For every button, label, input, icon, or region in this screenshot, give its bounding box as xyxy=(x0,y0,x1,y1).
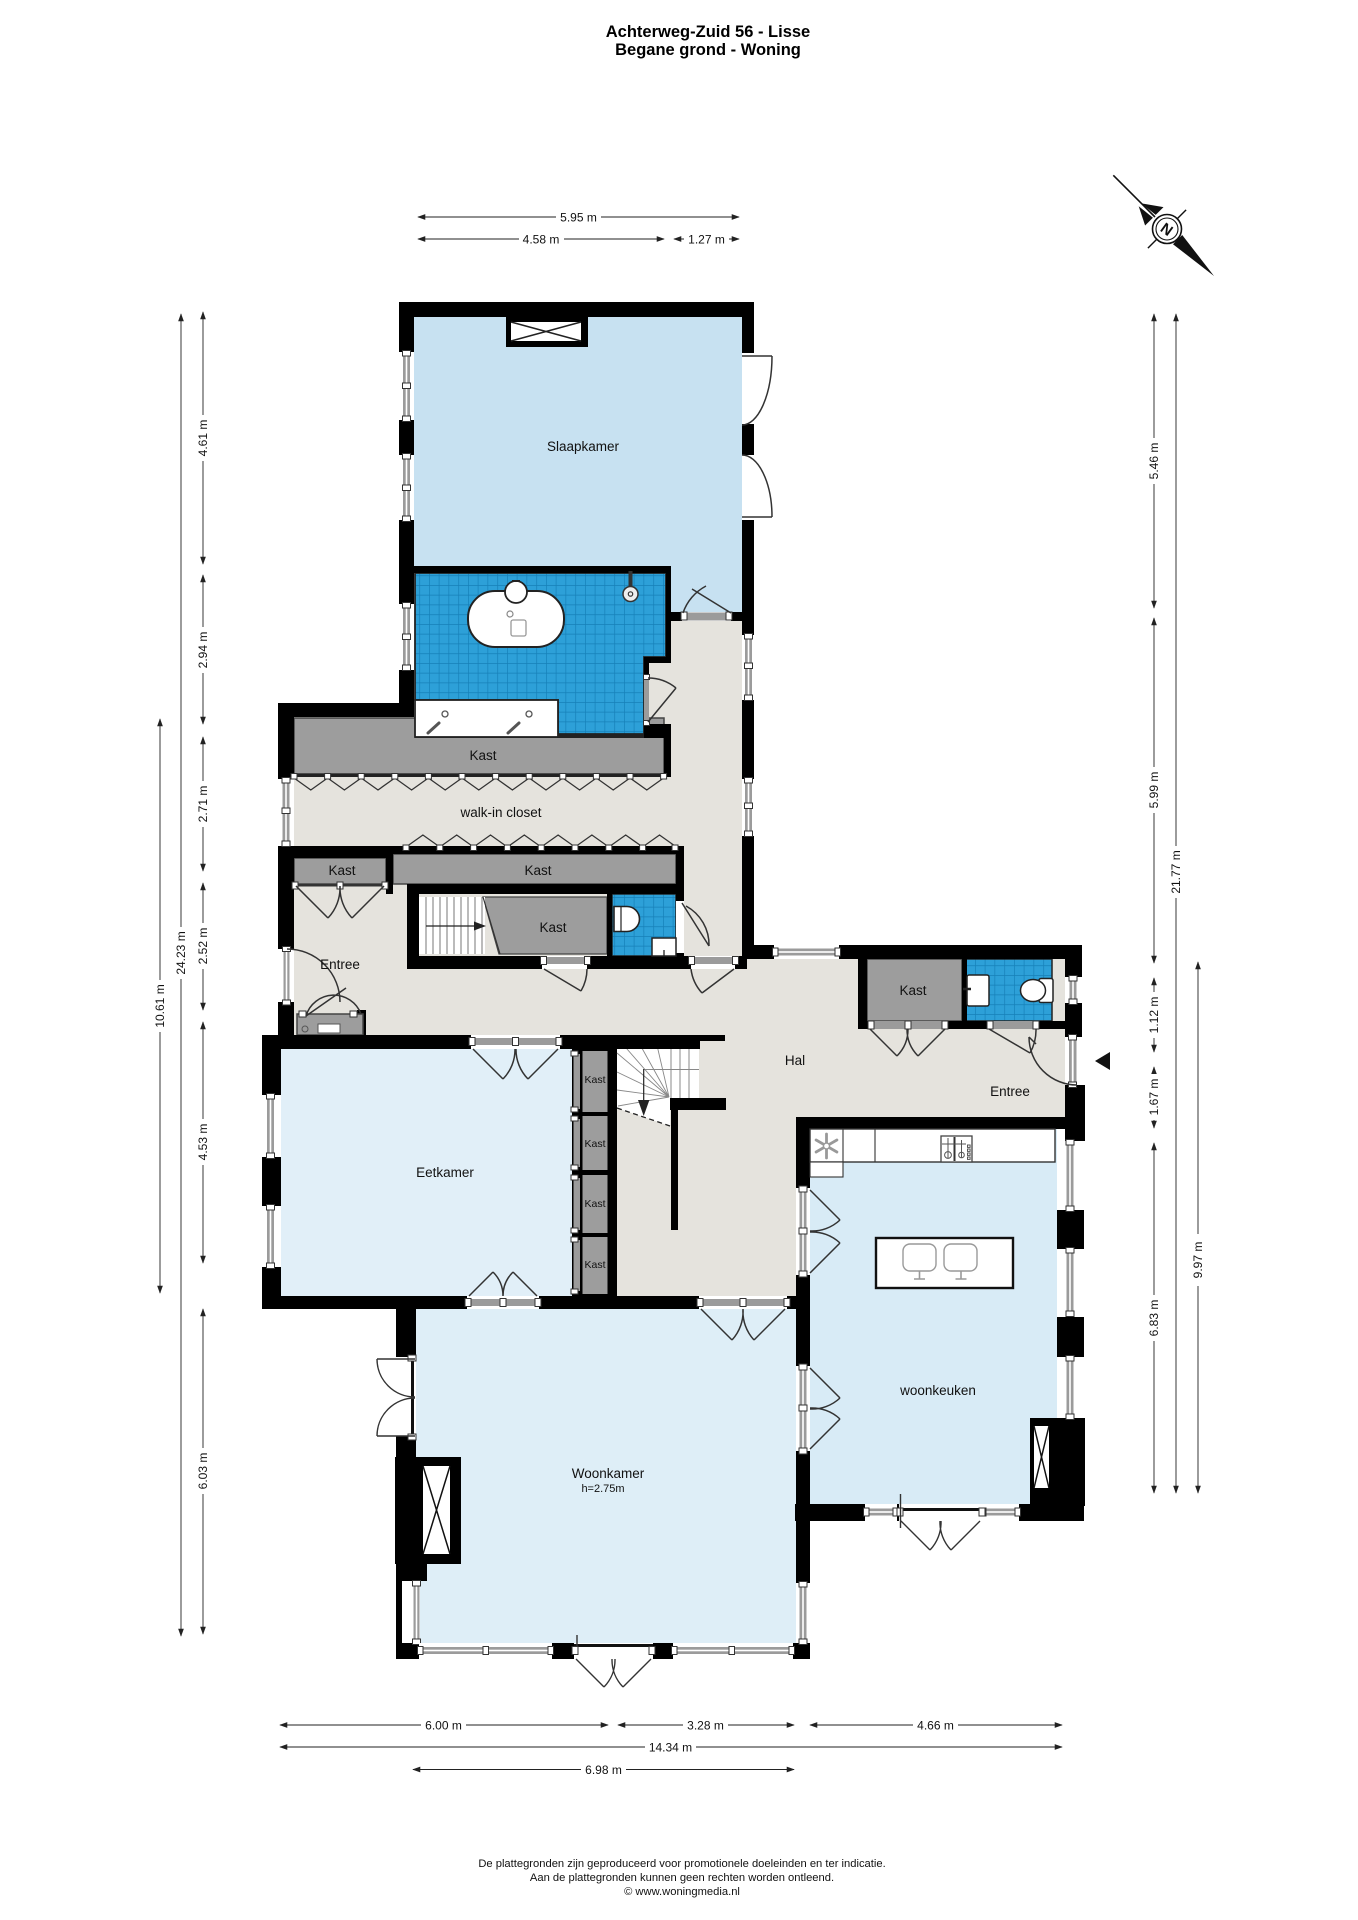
svg-text:Hal: Hal xyxy=(785,1053,805,1068)
svg-text:Entree: Entree xyxy=(320,957,360,972)
svg-text:© www.woningmedia.nl: © www.woningmedia.nl xyxy=(624,1886,740,1898)
svg-text:24.23 m: 24.23 m xyxy=(174,931,188,974)
svg-text:5.99 m: 5.99 m xyxy=(1147,772,1161,809)
svg-text:9.97 m: 9.97 m xyxy=(1191,1242,1205,1279)
svg-text:2.52 m: 2.52 m xyxy=(196,928,210,965)
svg-text:h=2.75m: h=2.75m xyxy=(581,1483,624,1495)
svg-text:De plattegronden zijn geproduc: De plattegronden zijn geproduceerd voor … xyxy=(478,1858,885,1870)
svg-text:Achterweg-Zuid 56 - Lisse: Achterweg-Zuid 56 - Lisse xyxy=(606,23,810,41)
svg-text:Kast: Kast xyxy=(584,1198,605,1210)
svg-text:2.94 m: 2.94 m xyxy=(196,632,210,669)
svg-text:5.46 m: 5.46 m xyxy=(1147,443,1161,480)
svg-text:4.61 m: 4.61 m xyxy=(196,420,210,457)
svg-text:Aan de plattegronden kunnen ge: Aan de plattegronden kunnen geen rechten… xyxy=(530,1872,834,1884)
svg-text:Kast: Kast xyxy=(328,863,355,878)
svg-text:Eetkamer: Eetkamer xyxy=(416,1165,474,1180)
svg-text:2.71 m: 2.71 m xyxy=(196,786,210,823)
svg-text:walk-in closet: walk-in closet xyxy=(459,805,541,820)
svg-text:Begane grond - Woning: Begane grond - Woning xyxy=(615,41,801,59)
svg-text:4.58 m: 4.58 m xyxy=(523,233,560,247)
svg-text:6.83 m: 6.83 m xyxy=(1147,1300,1161,1337)
svg-text:Kast: Kast xyxy=(584,1074,605,1086)
svg-text:21.77 m: 21.77 m xyxy=(1169,850,1183,893)
svg-text:6.03 m: 6.03 m xyxy=(196,1453,210,1490)
svg-text:woonkeuken: woonkeuken xyxy=(899,1383,976,1398)
svg-text:1.27 m: 1.27 m xyxy=(688,233,725,247)
svg-text:Woonkamer: Woonkamer xyxy=(572,1466,645,1481)
svg-text:Kast: Kast xyxy=(584,1138,605,1150)
svg-text:10.61 m: 10.61 m xyxy=(153,984,167,1027)
svg-text:5.95 m: 5.95 m xyxy=(560,211,597,225)
svg-text:14.34 m: 14.34 m xyxy=(649,1741,692,1755)
svg-text:6.98 m: 6.98 m xyxy=(585,1763,622,1777)
svg-text:Kast: Kast xyxy=(899,983,926,998)
svg-text:1.12 m: 1.12 m xyxy=(1147,997,1161,1034)
svg-text:Kast: Kast xyxy=(524,863,551,878)
svg-text:Kast: Kast xyxy=(469,748,496,763)
svg-text:4.53 m: 4.53 m xyxy=(196,1124,210,1161)
svg-text:Kast: Kast xyxy=(584,1259,605,1271)
svg-text:1.67 m: 1.67 m xyxy=(1147,1079,1161,1116)
svg-text:Kast: Kast xyxy=(539,920,566,935)
svg-text:6.00 m: 6.00 m xyxy=(425,1719,462,1733)
svg-text:Entree: Entree xyxy=(990,1084,1030,1099)
svg-text:Slaapkamer: Slaapkamer xyxy=(547,439,620,454)
svg-text:3.28 m: 3.28 m xyxy=(687,1719,724,1733)
svg-text:4.66 m: 4.66 m xyxy=(917,1719,954,1733)
